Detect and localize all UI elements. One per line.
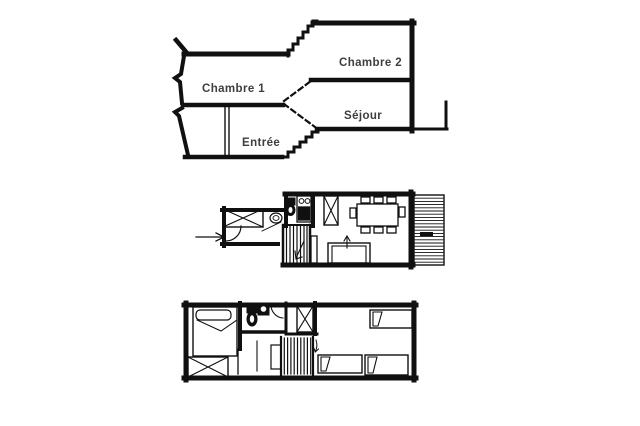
double-bed-icon <box>193 307 237 356</box>
entry-arrow-icon <box>196 233 224 241</box>
label-sejour: Séjour <box>344 110 382 122</box>
upper-floor-plan <box>196 192 444 267</box>
section-roof-steps <box>288 21 317 56</box>
single-bed-icon <box>370 310 412 328</box>
label-chambre-2: Chambre 2 <box>339 57 402 69</box>
section-stair-dashed-up <box>284 81 311 101</box>
single-bed-icon <box>318 355 362 373</box>
label-chambre-1: Chambre 1 <box>202 83 265 95</box>
floorplan-drawing <box>0 0 640 426</box>
toilet-icon <box>286 198 295 216</box>
wc-door-line <box>262 222 281 231</box>
wardrobe-icon <box>324 196 338 225</box>
section-roof-cap <box>176 40 187 53</box>
single-bed-icon <box>365 355 408 375</box>
staircase-icon <box>271 337 319 375</box>
section-entree-steps <box>282 132 318 157</box>
washbasin-icon <box>270 213 282 223</box>
label-entree: Entrée <box>242 137 280 149</box>
section-left-wall-upper <box>175 56 184 103</box>
section-stair-dashed-down <box>284 104 315 127</box>
kitchenette-icon <box>297 196 311 222</box>
balcony-icon <box>414 195 444 265</box>
door-swing-icon <box>226 226 241 241</box>
closet-icon <box>297 306 313 332</box>
dining-table-icon <box>350 197 405 233</box>
toilet-icon <box>247 305 257 326</box>
staircase-icon <box>283 225 317 264</box>
lower-floor-plan <box>184 303 416 380</box>
wardrobe-icon <box>188 357 228 377</box>
section-left-wall-lower <box>175 108 188 155</box>
washbasin-icon <box>258 303 269 315</box>
floorplan-image: Chambre 1 Chambre 2 Séjour Entrée <box>0 0 640 426</box>
sofa-icon <box>328 243 370 263</box>
